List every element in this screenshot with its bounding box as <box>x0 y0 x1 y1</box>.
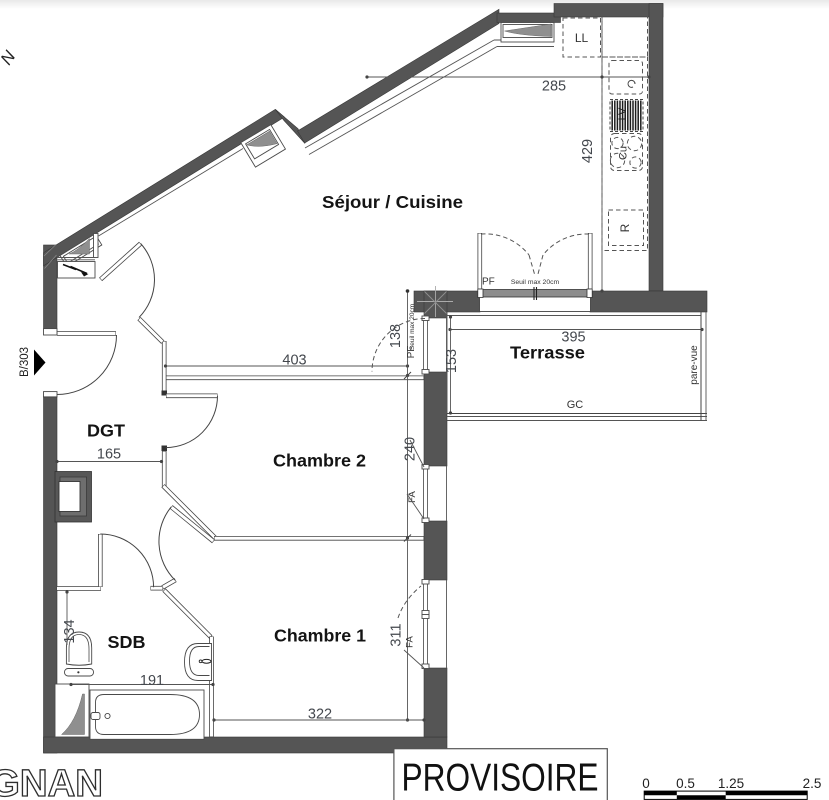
svg-text:R: R <box>618 223 632 232</box>
svg-text:165: 165 <box>97 447 121 463</box>
svg-text:Seuil max 20cm: Seuil max 20cm <box>409 304 416 350</box>
svg-text:LV: LV <box>617 107 629 120</box>
svg-text:0.5: 0.5 <box>676 776 695 791</box>
svg-text:Terrasse: Terrasse <box>510 343 585 363</box>
svg-text:PF: PF <box>482 277 495 288</box>
svg-text:PROVISOIRE: PROVISOIRE <box>402 757 599 800</box>
svg-text:GNAN: GNAN <box>0 763 103 800</box>
svg-text:191: 191 <box>140 673 164 689</box>
svg-text:SDB: SDB <box>108 632 146 652</box>
svg-text:pare-vue: pare-vue <box>689 345 700 385</box>
svg-text:GC: GC <box>567 399 584 411</box>
svg-text:134: 134 <box>62 619 78 643</box>
svg-text:138: 138 <box>388 324 404 348</box>
svg-text:B/303: B/303 <box>19 347 31 377</box>
svg-text:Séjour / Cuisine: Séjour / Cuisine <box>322 192 463 212</box>
svg-text:Chambre 2: Chambre 2 <box>273 451 366 471</box>
svg-text:1.25: 1.25 <box>718 776 744 791</box>
svg-text:FA: FA <box>405 636 416 648</box>
svg-text:2.5: 2.5 <box>803 776 822 791</box>
svg-text:153: 153 <box>444 349 460 373</box>
svg-text:285: 285 <box>542 79 566 95</box>
svg-text:Cu: Cu <box>618 146 630 160</box>
svg-text:0: 0 <box>642 776 650 791</box>
svg-text:311: 311 <box>389 623 405 646</box>
svg-text:LL: LL <box>575 31 589 45</box>
svg-text:Chambre 1: Chambre 1 <box>274 626 366 646</box>
svg-text:429: 429 <box>580 139 596 163</box>
svg-text:403: 403 <box>282 353 306 369</box>
svg-text:Seuil max 20cm: Seuil max 20cm <box>511 279 560 286</box>
svg-text:322: 322 <box>308 707 332 723</box>
svg-text:DGT: DGT <box>87 421 125 441</box>
